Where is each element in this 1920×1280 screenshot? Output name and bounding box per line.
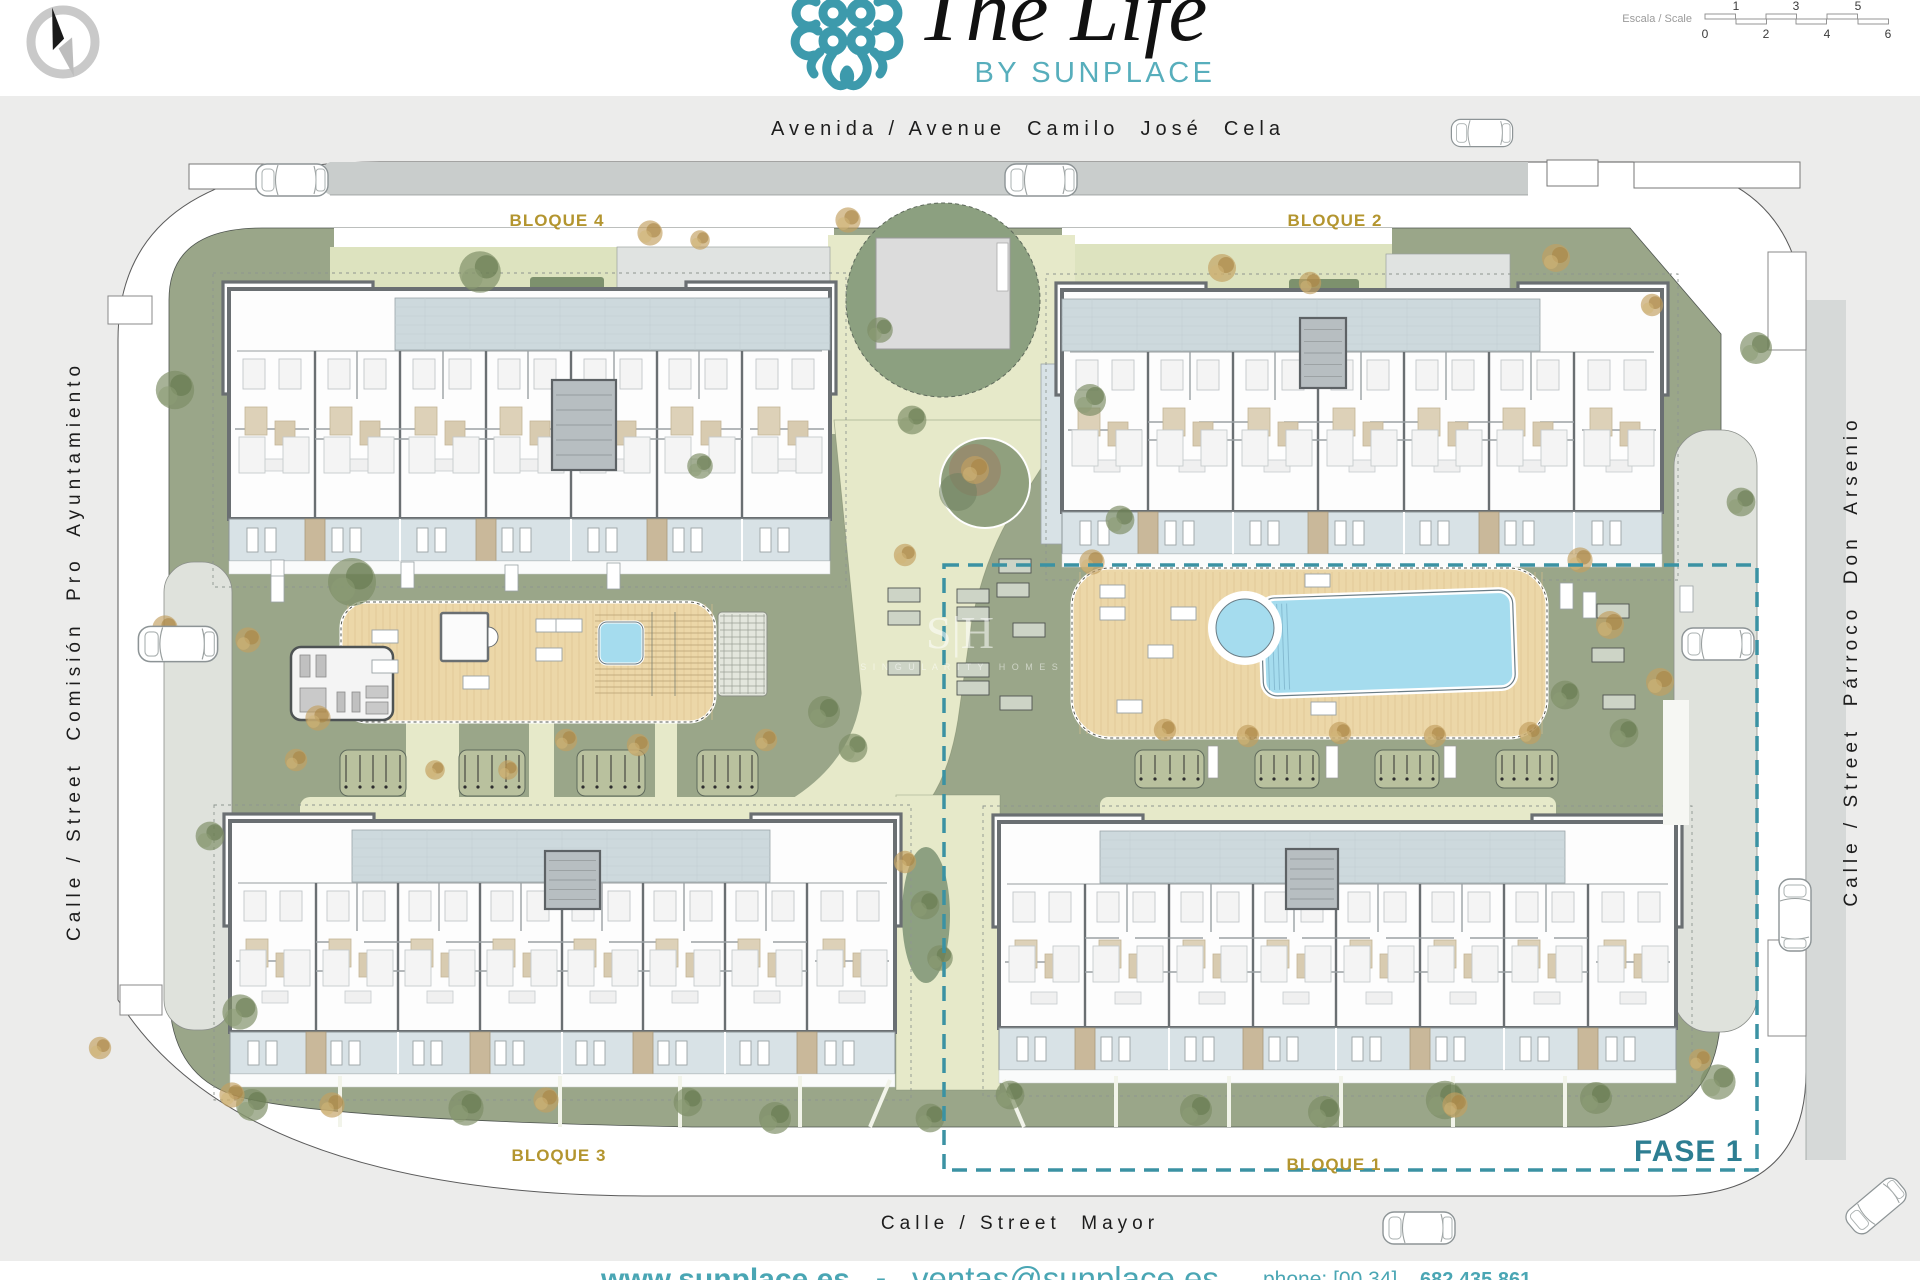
svg-text:-: - [876, 1262, 886, 1280]
svg-text:Calle / Street Párroco Don: Calle / Street Párroco Don Arsenio [1841, 415, 1862, 906]
svg-text:BLOQUE 4: BLOQUE 4 [510, 211, 605, 230]
svg-text:S|H: S|H [926, 607, 994, 658]
svg-text:682 435 861: 682 435 861 [1420, 1269, 1531, 1280]
svg-text:6: 6 [1885, 27, 1892, 41]
svg-text:BY SUNPLACE: BY SUNPLACE [974, 57, 1215, 89]
svg-text:5: 5 [1855, 0, 1862, 13]
svg-text:3: 3 [1793, 0, 1800, 13]
svg-text:4: 4 [1824, 27, 1831, 41]
svg-text:-: - [1237, 1267, 1245, 1280]
svg-text:BLOQUE 3: BLOQUE 3 [512, 1146, 607, 1165]
svg-text:0: 0 [1702, 27, 1709, 41]
svg-text:The Life: The Life [917, 0, 1208, 60]
svg-text:Calle / Street Comisión Pro: Calle / Street Comisión Pro Ayuntamiento [64, 361, 85, 941]
svg-text:Calle / Street Mayor: Calle / Street Mayor [881, 1213, 1159, 1234]
svg-text:S I N G U L A R I T Y H O M: S I N G U L A R I T Y H O M E S [860, 662, 1060, 672]
svg-text:2: 2 [1763, 27, 1770, 41]
svg-text:1: 1 [1733, 0, 1740, 13]
svg-text:Avenida / Avenue Camilo José: Avenida / Avenue Camilo José Cela [771, 118, 1285, 140]
svg-text:FASE 1: FASE 1 [1634, 1135, 1743, 1168]
svg-text:BLOQUE 1: BLOQUE 1 [1287, 1155, 1382, 1174]
svg-text:phone: [00 34]: phone: [00 34] [1263, 1268, 1397, 1280]
svg-text:BLOQUE 2: BLOQUE 2 [1288, 211, 1383, 230]
svg-text:www.sunplace.es: www.sunplace.es [600, 1263, 850, 1280]
svg-text:ventas@sunplace.es: ventas@sunplace.es [912, 1260, 1219, 1280]
svg-text:Escala / Scale: Escala / Scale [1622, 13, 1692, 25]
